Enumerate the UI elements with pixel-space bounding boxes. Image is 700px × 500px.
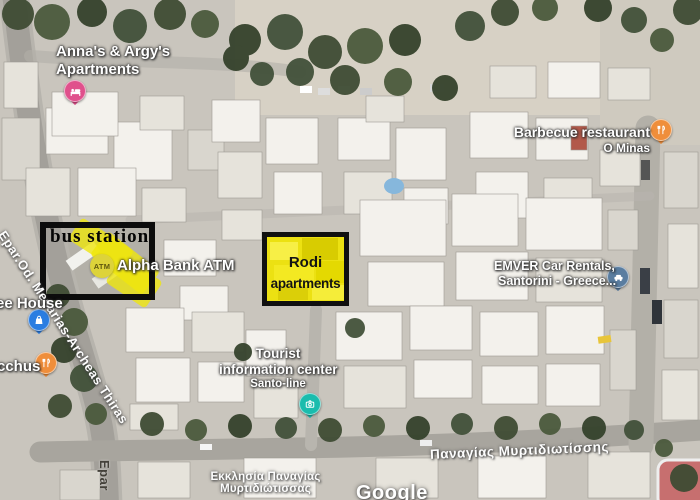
poi-label-alpha-bank-atm[interactable]: Alpha Bank ATM bbox=[117, 257, 235, 275]
annas-line2: Apartments bbox=[56, 61, 170, 79]
rodi-apartments-annotation-box: Rodi apartments bbox=[262, 232, 349, 306]
poi-label-barbecue-restaurant[interactable]: Barbecue restaurant O Minas bbox=[508, 124, 650, 155]
attraction-pin-tourist-info[interactable] bbox=[299, 393, 321, 424]
bus-station-label: bus station bbox=[50, 226, 149, 248]
poi-label-coffee-house[interactable]: ee House bbox=[0, 295, 63, 313]
church-line2: Μυρτιδιώτισσας bbox=[183, 483, 348, 495]
poi-label-annas-apartments[interactable]: Anna's & Argy's Apartments bbox=[56, 43, 170, 78]
annas-line1: Anna's & Argy's bbox=[56, 43, 170, 61]
camera-icon bbox=[299, 393, 321, 415]
tourist-line3: Santo-line bbox=[219, 378, 337, 392]
fork-knife-icon bbox=[650, 119, 672, 141]
atm-marker[interactable]: ATM bbox=[90, 254, 114, 278]
google-logo[interactable]: Google bbox=[356, 482, 428, 500]
rodi-label-line1: Rodi bbox=[267, 251, 344, 274]
church-line1: Εκκλησία Παναγίας bbox=[183, 471, 348, 483]
tourist-line1: Tourist bbox=[219, 346, 337, 362]
lodging-pin[interactable] bbox=[64, 80, 86, 111]
barbecue-subtitle: O Minas bbox=[508, 141, 650, 155]
poi-label-bacchus[interactable]: cchus bbox=[0, 358, 40, 376]
church-label: Εκκλησία Παναγίας Μυρτιδιώτισσας bbox=[183, 471, 348, 495]
tourist-line2: information center bbox=[219, 362, 337, 378]
poi-label-tourist-info[interactable]: Tourist information center Santo-line bbox=[219, 346, 337, 391]
restaurant-pin-barbecue[interactable] bbox=[650, 119, 672, 150]
street-label-epar: Epar bbox=[97, 460, 112, 491]
rodi-label-line2: apartments bbox=[267, 274, 344, 295]
satellite-map: bus station Rodi apartments bbox=[0, 0, 700, 500]
bed-icon bbox=[64, 80, 86, 102]
emver-line1: EMVER Car Rentals, bbox=[494, 259, 616, 274]
emver-line2: Santorini - Greece... bbox=[494, 274, 616, 289]
rodi-apartments-label: Rodi apartments bbox=[267, 251, 344, 295]
poi-label-emver-car-rentals[interactable]: EMVER Car Rentals, Santorini - Greece... bbox=[494, 259, 616, 289]
barbecue-name: Barbecue restaurant bbox=[508, 124, 650, 141]
